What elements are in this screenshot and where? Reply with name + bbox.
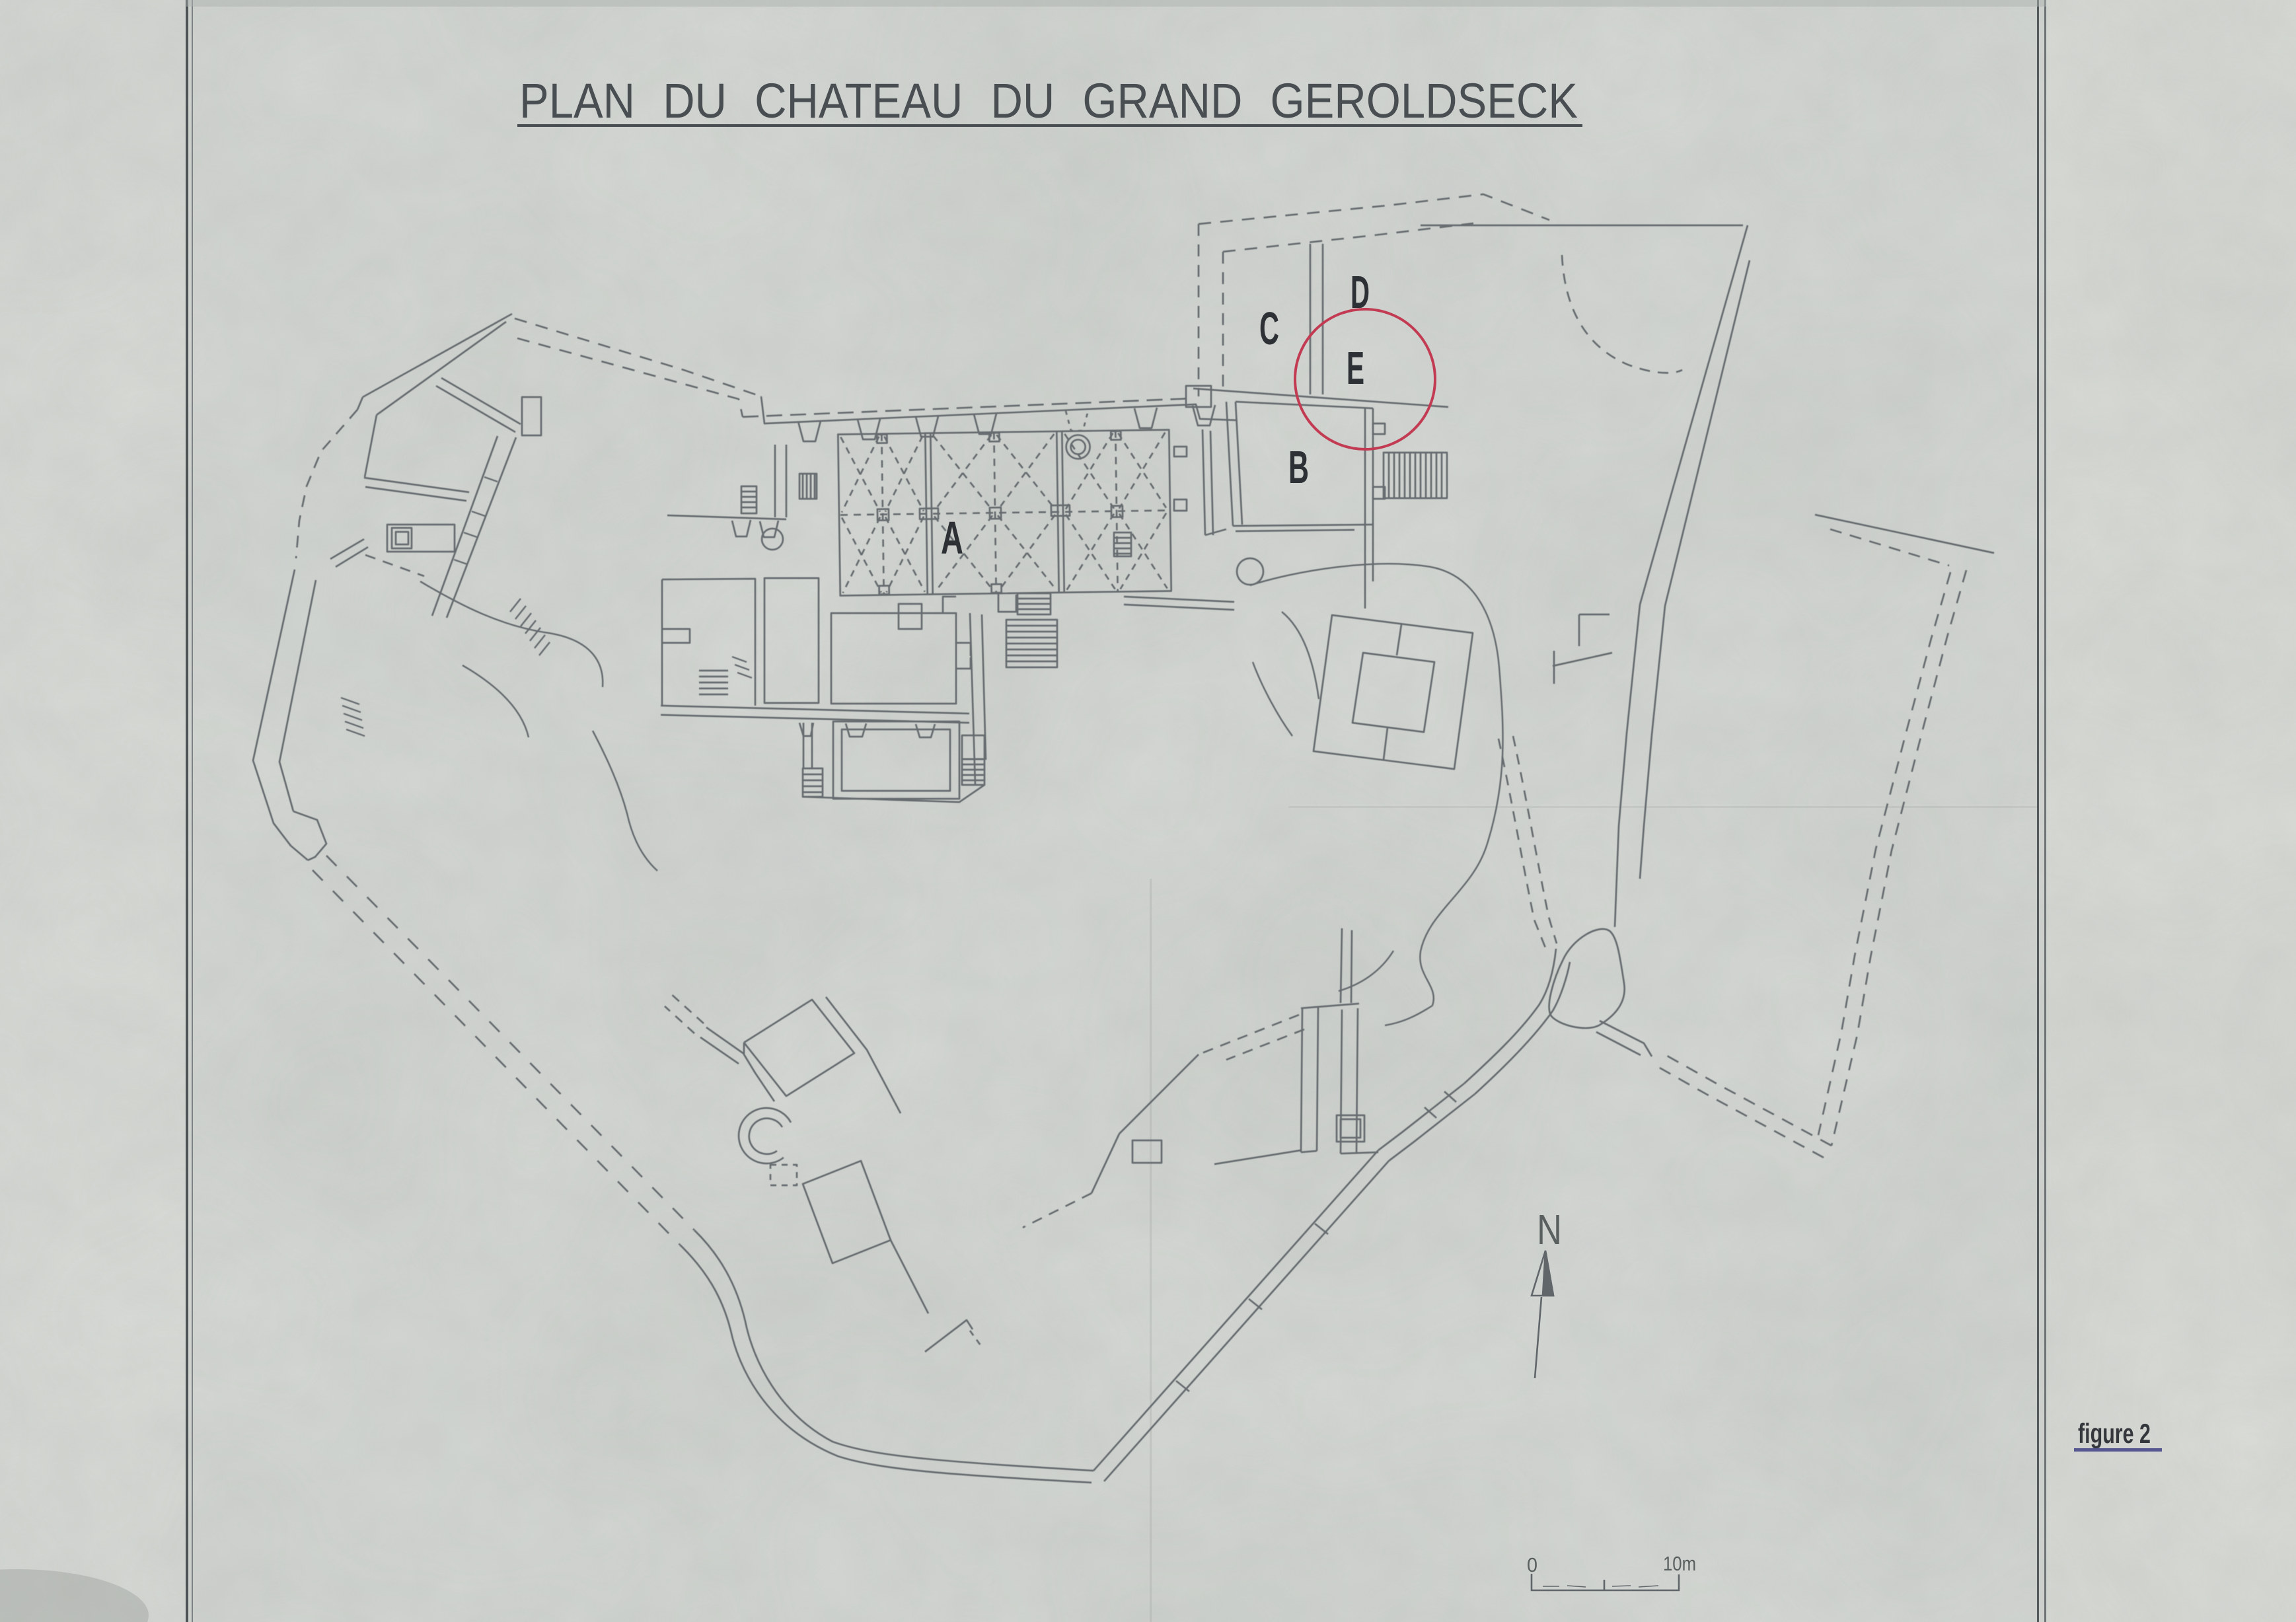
svg-text:C: C	[1259, 303, 1279, 354]
svg-text:10m: 10m	[1663, 1552, 1696, 1575]
svg-text:0: 0	[1527, 1553, 1537, 1576]
svg-text:E: E	[1347, 342, 1364, 394]
svg-text:figure 2: figure 2	[2078, 1418, 2151, 1449]
svg-text:A: A	[941, 512, 963, 564]
svg-text:PLAN DU CHATEAU DU GRAND GEROL: PLAN DU CHATEAU DU GRAND GEROLDSECK	[519, 73, 1578, 128]
svg-text:B: B	[1288, 441, 1309, 493]
svg-text:N: N	[1537, 1206, 1562, 1253]
